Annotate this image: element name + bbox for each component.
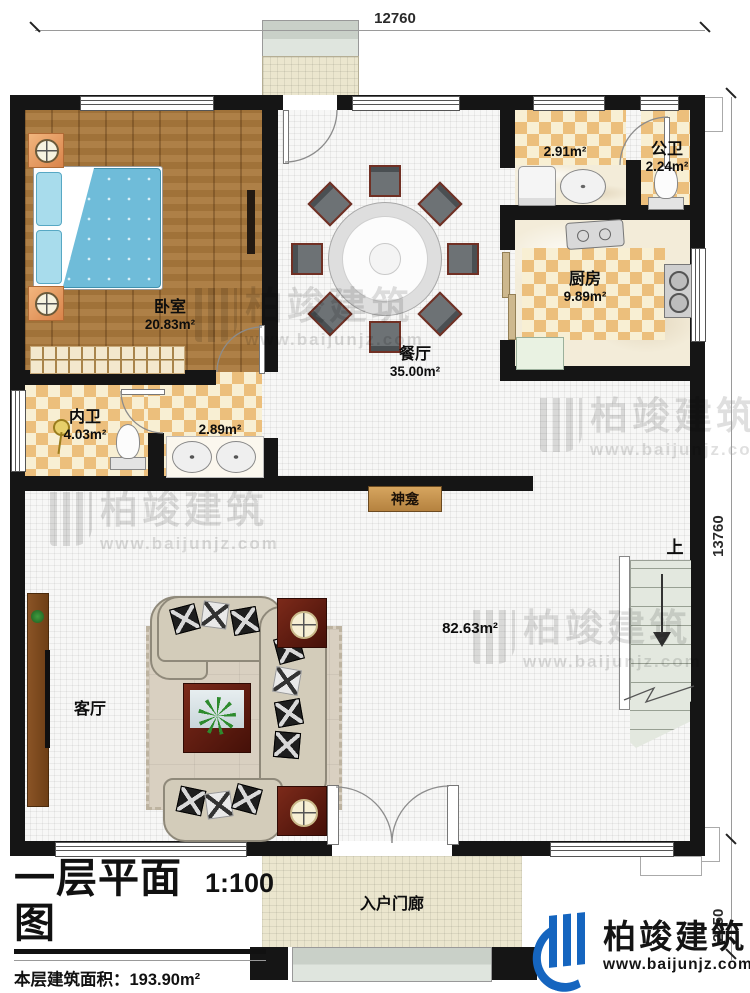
door-opening bbox=[332, 841, 452, 856]
title-underline bbox=[14, 949, 266, 954]
vanity-sink bbox=[172, 441, 212, 473]
porch-steps bbox=[292, 947, 492, 982]
room-label-public-bath: 公卫 2.24m² bbox=[628, 140, 706, 175]
page-title: 一层平面图 bbox=[14, 856, 193, 946]
stair-arrow-line bbox=[661, 574, 663, 634]
logo-bars-icon bbox=[549, 912, 585, 968]
room-label-vanity: 2.89m² bbox=[180, 422, 260, 438]
plant-icon bbox=[198, 697, 236, 735]
room-label-laundry: 2.91m² bbox=[525, 144, 605, 160]
sofa-cushion bbox=[204, 790, 233, 819]
stair-handrail bbox=[619, 556, 630, 710]
floor-lamp-icon bbox=[290, 799, 318, 827]
nightstand bbox=[28, 133, 64, 168]
wardrobe bbox=[30, 346, 185, 374]
porch-label: 入户门廊 bbox=[360, 890, 424, 914]
drawing-scale: 1:100 bbox=[205, 868, 274, 899]
laundry-sink bbox=[560, 169, 606, 204]
stove bbox=[664, 264, 692, 318]
faucet-icon bbox=[577, 229, 590, 242]
sofa-cushion bbox=[272, 666, 302, 696]
window bbox=[352, 96, 460, 111]
wall bbox=[10, 476, 533, 491]
side-table bbox=[277, 598, 327, 648]
sliding-door-panel bbox=[508, 294, 516, 340]
brand-logo: 柏竣建筑 www.baijunjz.com bbox=[533, 912, 750, 982]
room-label-kitchen: 厨房 9.89m² bbox=[545, 270, 625, 305]
window bbox=[640, 96, 679, 111]
pillow bbox=[36, 172, 62, 226]
brand-text: 柏竣建筑 www.baijunjz.com bbox=[603, 920, 750, 974]
side-table bbox=[277, 786, 327, 836]
dimension-line-top bbox=[35, 30, 705, 31]
table-lamp-icon bbox=[35, 139, 59, 163]
room-label-private-bath: 内卫 4.03m² bbox=[45, 408, 125, 443]
room-label-living: 客厅 bbox=[60, 700, 120, 719]
floor-plan-canvas: 入户门廊 bbox=[0, 0, 750, 993]
dining-table-center bbox=[369, 243, 401, 275]
dimension-line-right bbox=[731, 97, 732, 960]
entry-door-leaf bbox=[327, 785, 339, 845]
sofa-cushion bbox=[200, 600, 229, 629]
sofa-cushion bbox=[230, 606, 260, 636]
porch-column-right bbox=[492, 947, 537, 980]
window bbox=[691, 248, 706, 342]
fridge bbox=[516, 337, 564, 370]
room-area-living: 82.63m² bbox=[420, 620, 520, 638]
vanity-sink bbox=[216, 441, 256, 473]
living-tv bbox=[45, 650, 50, 748]
title-row: 一层平面图 1:100 bbox=[14, 856, 274, 946]
dining-chair bbox=[447, 243, 479, 275]
dining-chair bbox=[369, 165, 401, 197]
sofa-cushion bbox=[274, 698, 304, 728]
brand-name: 柏竣建筑 bbox=[603, 920, 750, 953]
room-label-dining: 餐厅 35.00m² bbox=[365, 345, 465, 380]
nightstand bbox=[28, 286, 64, 321]
entry-porch-floor: 入户门廊 bbox=[262, 856, 522, 947]
kitchen-sink bbox=[565, 219, 625, 250]
table-lamp-icon bbox=[35, 292, 59, 316]
door-leaf bbox=[121, 389, 165, 395]
window bbox=[550, 842, 674, 857]
dining-chair bbox=[291, 243, 323, 275]
title-underline-thin bbox=[14, 960, 266, 961]
balcony-tile-floor bbox=[262, 56, 359, 100]
wall bbox=[262, 438, 278, 478]
wall bbox=[148, 433, 164, 476]
exterior-step-pad bbox=[640, 856, 702, 876]
room-label-bedroom: 卧室 20.83m² bbox=[120, 298, 220, 333]
sofa-cushion bbox=[273, 731, 301, 759]
washing-machine bbox=[518, 166, 556, 206]
area-row: 本层建筑面积：193.90m² bbox=[14, 966, 274, 990]
burner-icon bbox=[669, 271, 689, 291]
cabinet-plant-icon bbox=[31, 610, 44, 623]
door-leaf bbox=[283, 110, 289, 164]
entry-door-leaf bbox=[447, 785, 459, 845]
brand-site: www.baijunjz.com bbox=[603, 956, 750, 974]
window bbox=[11, 390, 26, 472]
burner-icon bbox=[669, 293, 689, 313]
floor-lamp-icon bbox=[290, 611, 318, 639]
wall bbox=[500, 110, 515, 168]
door-leaf bbox=[259, 325, 265, 374]
sofa-cushion bbox=[176, 786, 207, 817]
pillow bbox=[36, 230, 62, 284]
window bbox=[80, 96, 214, 111]
shrine-label: 神龛 bbox=[391, 489, 419, 509]
stair-arrow-head bbox=[653, 632, 671, 647]
dimension-top-value: 12760 bbox=[350, 10, 440, 27]
sliding-door-panel bbox=[502, 252, 510, 298]
brand-logo-icon bbox=[533, 912, 595, 982]
door-opening bbox=[283, 95, 337, 110]
shrine-table: 神龛 bbox=[368, 486, 442, 512]
coffee-table bbox=[183, 683, 251, 753]
window bbox=[533, 96, 605, 111]
stairs-up-label: 上 bbox=[660, 538, 690, 558]
title-block: 一层平面图 1:100 本层建筑面积：193.90m² 本栋建筑面积：638.0… bbox=[14, 856, 274, 993]
faucet-icon bbox=[599, 228, 612, 241]
balcony-steps bbox=[262, 20, 359, 58]
dimension-right-value: 13760 bbox=[710, 462, 727, 557]
bedroom-tv bbox=[247, 190, 255, 254]
